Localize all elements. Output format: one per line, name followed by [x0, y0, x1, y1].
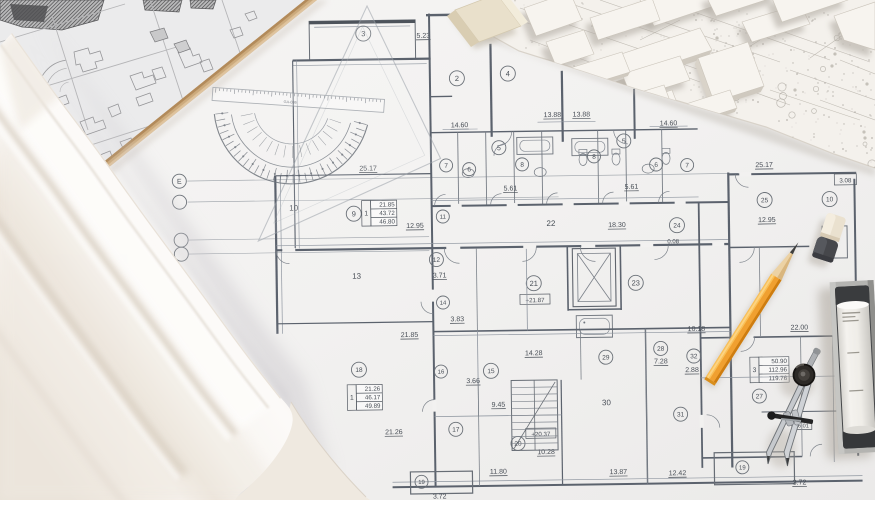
- svg-text:11.80: 11.80: [490, 469, 507, 476]
- svg-text:5.61: 5.61: [504, 185, 518, 192]
- svg-text:5.23: 5.23: [416, 33, 430, 40]
- svg-text:0.08: 0.08: [667, 239, 679, 245]
- svg-text:29: 29: [602, 355, 610, 362]
- svg-text:23: 23: [632, 278, 640, 287]
- svg-text:21.26: 21.26: [365, 386, 381, 393]
- svg-text:13.87: 13.87: [610, 469, 628, 476]
- svg-text:19: 19: [739, 465, 746, 471]
- svg-text:3.83: 3.83: [450, 316, 464, 323]
- svg-text:9.45: 9.45: [492, 402, 506, 409]
- svg-text:E: E: [177, 179, 182, 186]
- svg-text:28: 28: [657, 346, 665, 353]
- svg-text:19: 19: [418, 480, 425, 486]
- svg-text:49.89: 49.89: [365, 403, 381, 410]
- svg-text:5.61: 5.61: [625, 184, 639, 191]
- svg-text:21: 21: [530, 279, 538, 288]
- svg-text:13: 13: [352, 272, 362, 281]
- svg-text:24: 24: [673, 223, 681, 230]
- svg-text:11: 11: [440, 215, 447, 221]
- svg-text:14.60: 14.60: [451, 122, 469, 129]
- svg-text:21.85: 21.85: [401, 332, 419, 339]
- svg-text:21.85: 21.85: [379, 201, 395, 208]
- svg-text:15: 15: [487, 368, 495, 375]
- svg-text:18: 18: [355, 367, 363, 374]
- svg-text:50.90: 50.90: [771, 358, 787, 365]
- svg-text:8: 8: [520, 162, 524, 169]
- svg-text:14: 14: [440, 301, 447, 307]
- svg-text:12.95: 12.95: [758, 217, 776, 224]
- svg-text:21.26: 21.26: [385, 429, 403, 436]
- svg-text:1: 1: [350, 395, 354, 402]
- svg-text:16: 16: [438, 370, 445, 376]
- svg-text:6: 6: [467, 166, 471, 173]
- svg-text:8: 8: [592, 154, 596, 161]
- svg-text:1: 1: [364, 210, 368, 217]
- svg-text:46.80: 46.80: [379, 218, 395, 225]
- svg-text:7.28: 7.28: [654, 358, 668, 365]
- svg-text:25: 25: [761, 197, 769, 204]
- svg-text:7: 7: [685, 162, 689, 169]
- svg-text:3: 3: [753, 367, 757, 374]
- svg-text:25.17: 25.17: [755, 162, 773, 169]
- svg-text:13.88: 13.88: [544, 112, 562, 119]
- svg-text:3.08: 3.08: [839, 177, 852, 184]
- svg-text:+21.87: +21.87: [525, 297, 545, 304]
- svg-text:2.88: 2.88: [685, 367, 699, 374]
- svg-text:12.95: 12.95: [406, 223, 424, 230]
- svg-text:+20.37: +20.37: [531, 431, 551, 438]
- svg-text:27: 27: [756, 393, 764, 400]
- svg-text:5: 5: [622, 138, 626, 145]
- svg-text:10: 10: [826, 196, 834, 203]
- svg-text:112.96: 112.96: [768, 366, 787, 373]
- svg-text:3.72: 3.72: [433, 493, 447, 500]
- svg-text:13.88: 13.88: [573, 111, 591, 118]
- svg-text:43.72: 43.72: [379, 210, 395, 217]
- svg-text:2: 2: [455, 74, 459, 83]
- svg-text:12.42: 12.42: [669, 470, 687, 477]
- svg-text:32: 32: [690, 353, 698, 360]
- svg-text:17: 17: [452, 427, 460, 434]
- svg-text:6: 6: [654, 162, 658, 169]
- svg-text:3.71: 3.71: [433, 272, 447, 279]
- svg-text:46.17: 46.17: [365, 394, 381, 401]
- svg-text:22.00: 22.00: [791, 324, 809, 331]
- svg-text:18.30: 18.30: [608, 222, 626, 229]
- svg-text:14.28: 14.28: [525, 350, 543, 357]
- svg-text:4: 4: [506, 69, 510, 78]
- svg-text:30: 30: [602, 398, 612, 407]
- svg-text:3.72: 3.72: [793, 479, 807, 486]
- svg-text:7: 7: [444, 163, 448, 170]
- svg-text:31: 31: [677, 411, 685, 418]
- svg-text:9: 9: [352, 209, 356, 218]
- svg-text:22: 22: [546, 219, 556, 228]
- svg-text:10.18: 10.18: [688, 326, 706, 333]
- svg-text:12: 12: [433, 257, 441, 264]
